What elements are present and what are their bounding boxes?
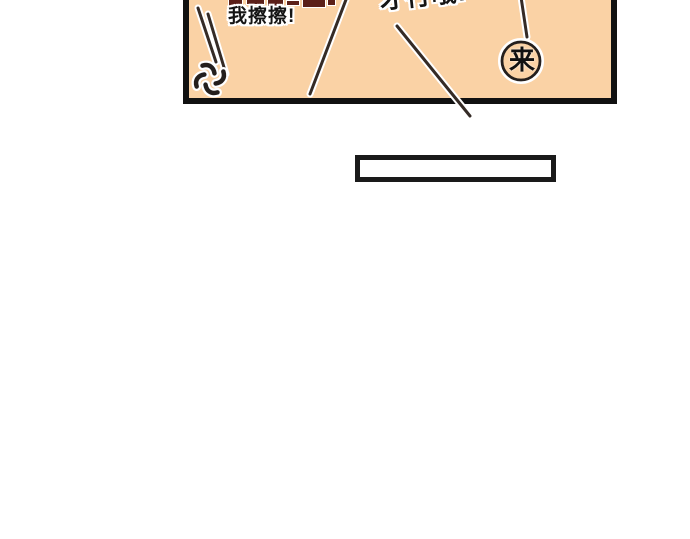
balloon-character: 来 xyxy=(507,46,537,75)
shout-text-left: 我擦擦! xyxy=(228,7,295,27)
caption-box xyxy=(355,155,556,182)
comic-page: 我擦擦! 才行哦! 来 xyxy=(0,0,690,539)
